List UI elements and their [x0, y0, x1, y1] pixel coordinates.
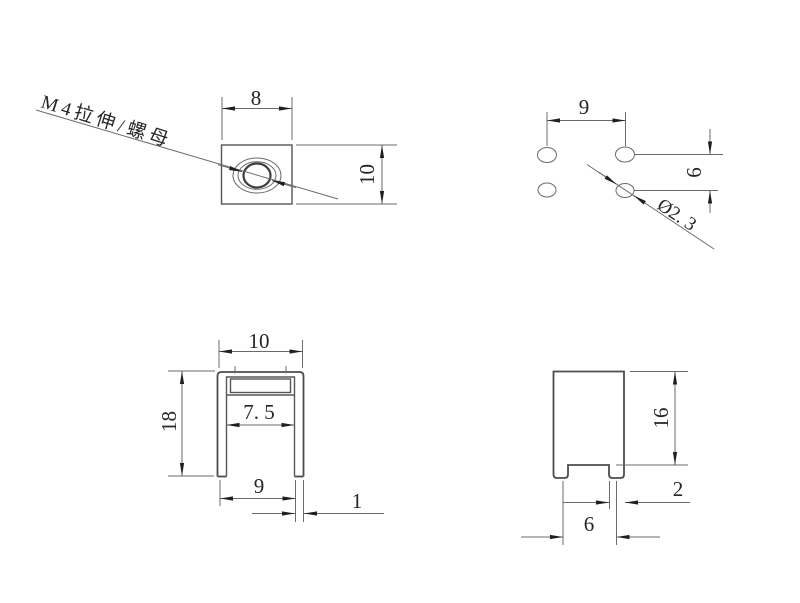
front-view-nut-plate	[231, 379, 291, 393]
dimension-front-height: 18	[157, 371, 215, 476]
front-view: 10 18 7. 5 9 1	[157, 329, 384, 522]
technical-drawing-page: M4拉伸/螺母 8 10 9	[0, 0, 800, 603]
dimension-hole-spacing-h: 9	[547, 95, 626, 146]
dimension-label: 6	[682, 167, 706, 178]
hole-top-left	[538, 148, 557, 163]
hole-bottom-left	[538, 183, 556, 197]
dimension-label: Ø2. 3	[653, 195, 700, 236]
dimension-label: 6	[584, 512, 595, 536]
dimension-label: 10	[355, 164, 379, 185]
dimension-front-wall-thickness: 1	[252, 489, 384, 514]
dimension-label: 1	[352, 489, 363, 513]
dimension-label: 16	[649, 408, 673, 429]
side-view-outline	[554, 372, 625, 479]
dimension-label: 9	[579, 95, 590, 119]
top-view: M4拉伸/螺母 8 10	[36, 86, 397, 204]
nut-callout-label: M4拉伸/螺母	[39, 91, 175, 152]
hole-pattern-view: 9 6 Ø2. 3	[538, 95, 724, 249]
dimension-label: 2	[673, 477, 684, 501]
technical-drawing: M4拉伸/螺母 8 10 9	[0, 0, 800, 603]
dimension-front-leg-span: 9	[220, 474, 304, 522]
dimension-label: 9	[254, 474, 265, 498]
dimension-front-outer-width: 10	[219, 329, 303, 368]
dimension-top-width: 8	[222, 86, 292, 140]
leader-arrow	[634, 196, 646, 204]
hole-top-right	[616, 147, 635, 162]
dimension-label: 8	[251, 86, 262, 110]
dimension-hole-spacing-v: 6	[634, 129, 723, 213]
side-view: 16 2 6	[521, 372, 690, 546]
dimension-side-leg-spacing: 6	[521, 481, 660, 545]
dimension-label: 7. 5	[243, 400, 275, 424]
dimension-top-height: 10	[296, 145, 397, 204]
dimension-label: 18	[157, 411, 181, 432]
dimension-side-height: 16	[616, 372, 688, 466]
dimension-label: 10	[249, 329, 270, 353]
dimension-side-leg-width: 2	[563, 477, 690, 545]
leader-arrow	[598, 172, 617, 184]
dimension-front-inner-width: 7. 5	[227, 400, 295, 425]
